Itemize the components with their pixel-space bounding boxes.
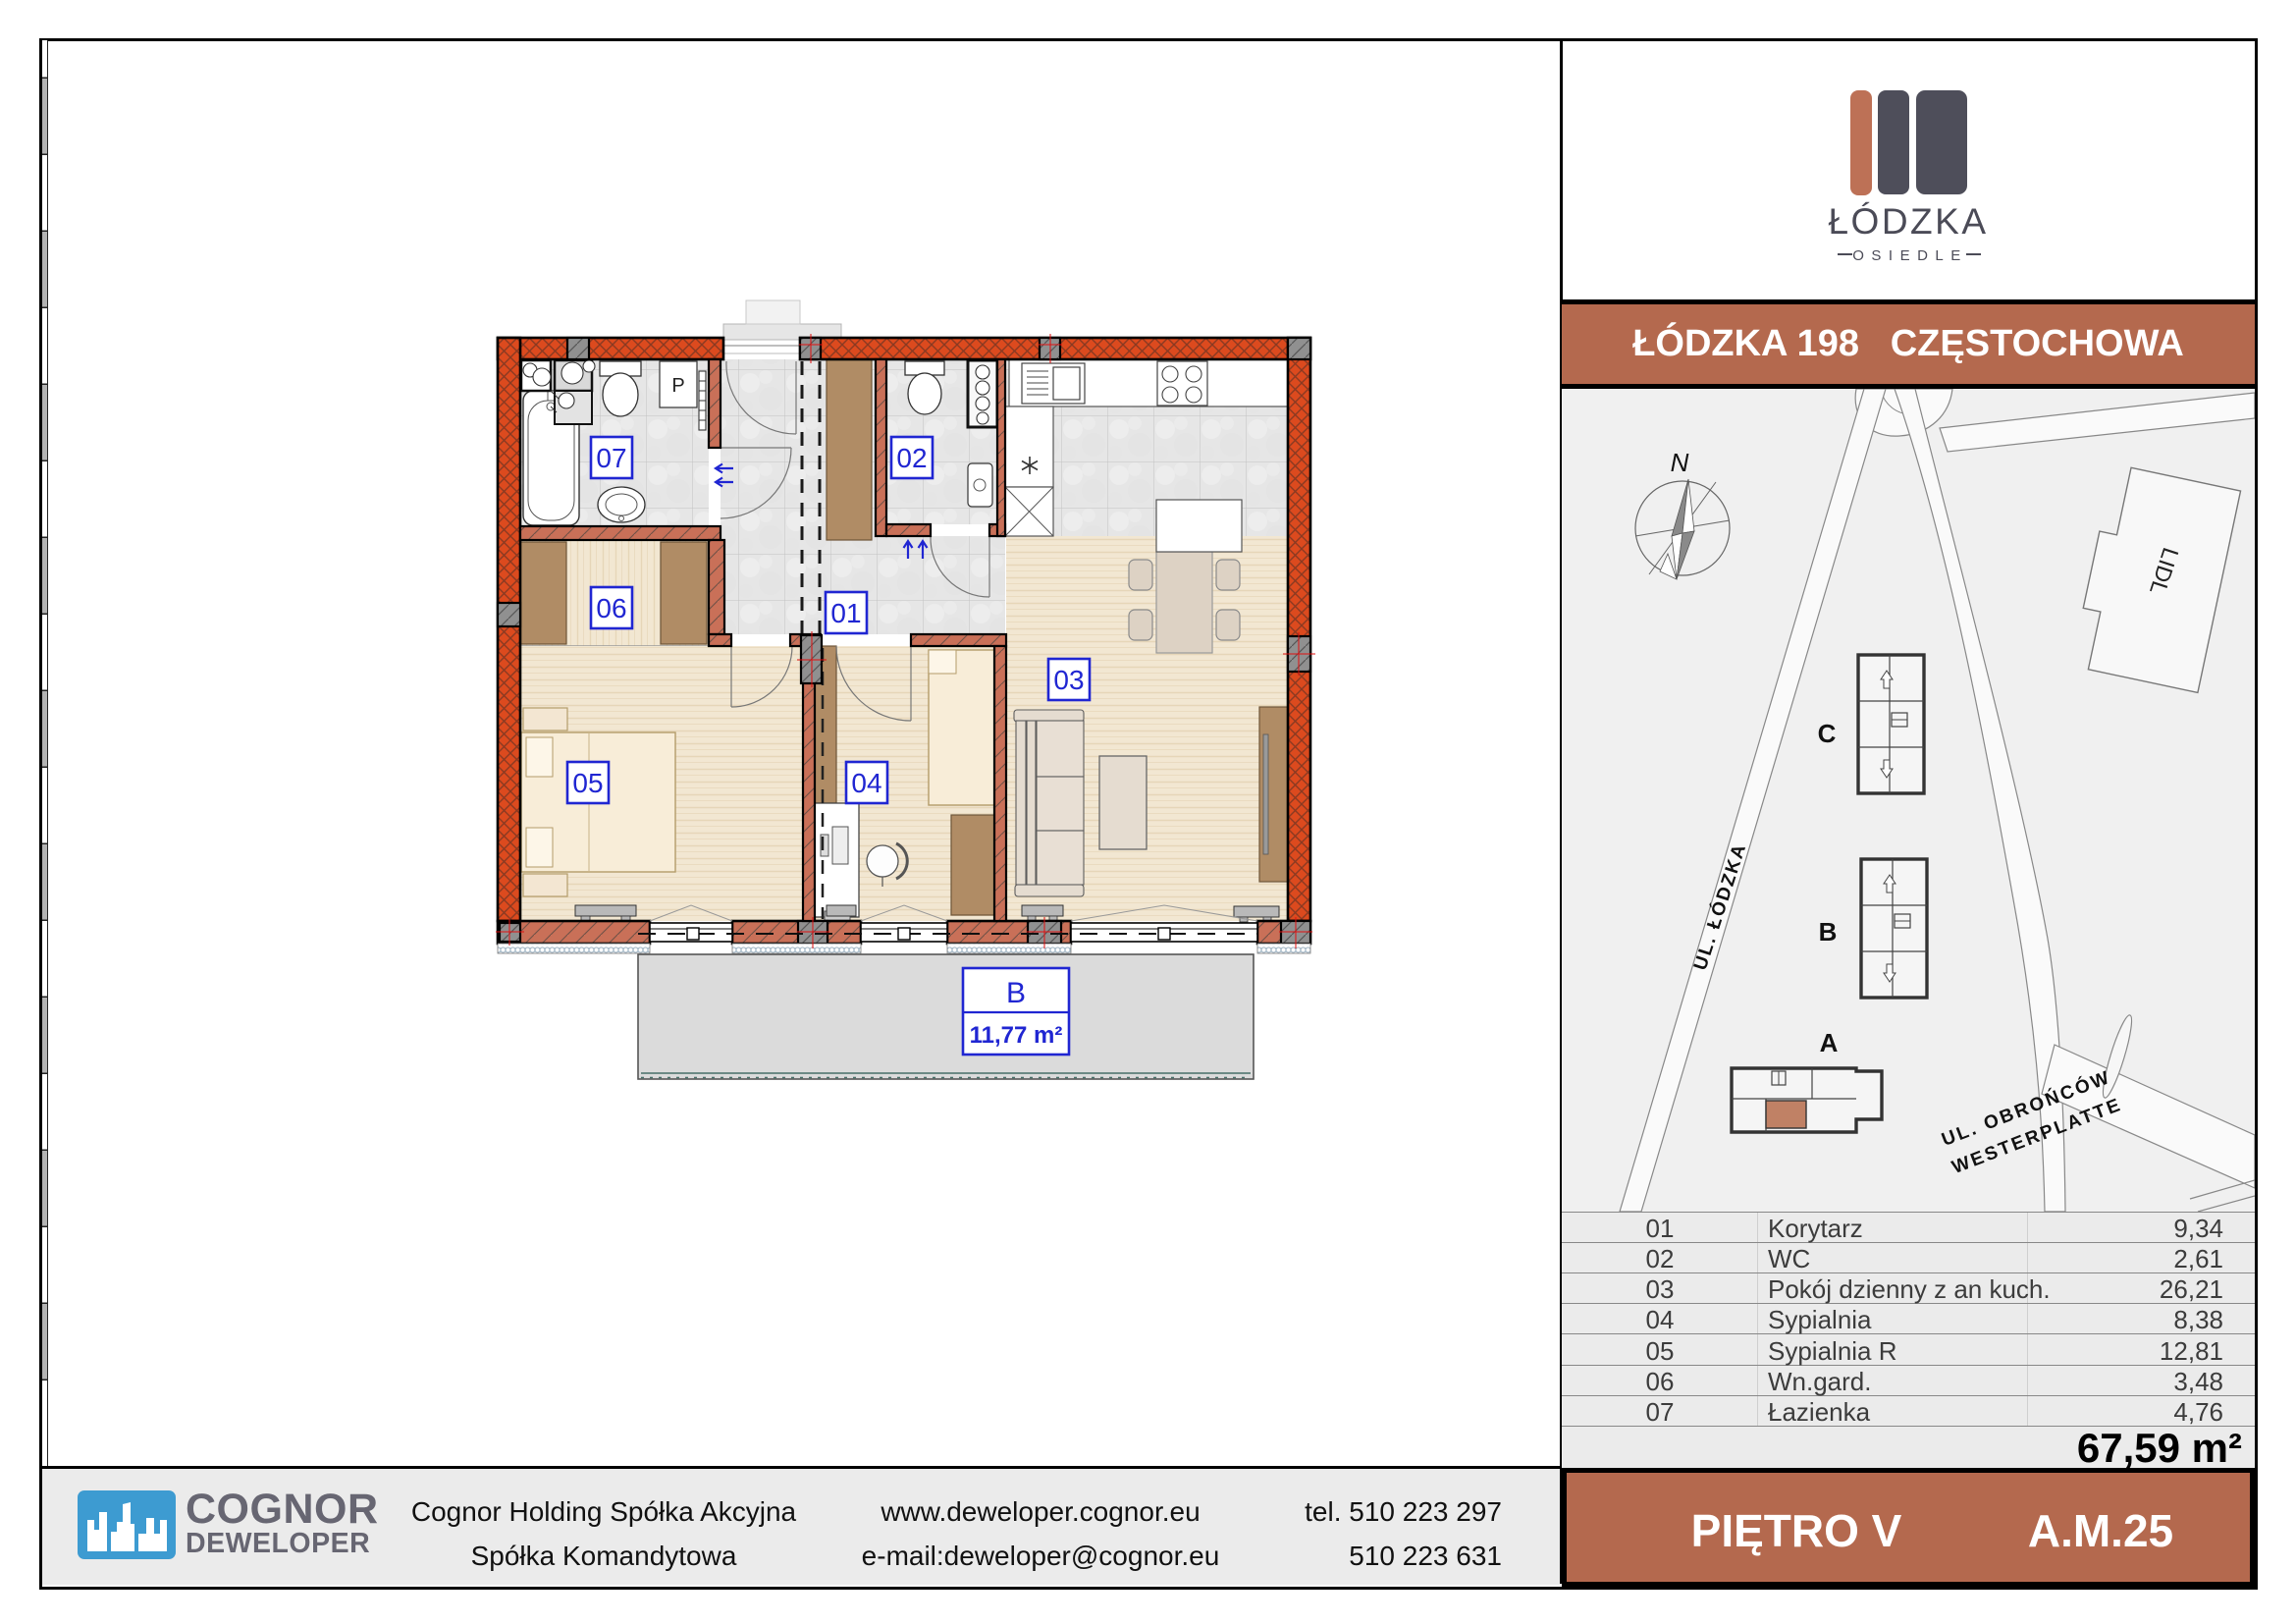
svg-text:04: 04 bbox=[851, 768, 881, 798]
svg-text:03: 03 bbox=[1053, 665, 1084, 695]
svg-text:11,77 m²: 11,77 m² bbox=[970, 1022, 1063, 1049]
svg-text:02: 02 bbox=[896, 443, 927, 473]
svg-text:N: N bbox=[1671, 448, 1689, 477]
svg-text:ŁÓDZKA: ŁÓDZKA bbox=[1828, 201, 1988, 242]
svg-text:A: A bbox=[1820, 1028, 1839, 1057]
svg-text:B: B bbox=[1006, 977, 1026, 1009]
svg-text:06: 06 bbox=[596, 593, 626, 623]
svg-text:01: 01 bbox=[830, 598, 861, 628]
svg-text:05: 05 bbox=[572, 768, 603, 798]
svg-text:P: P bbox=[671, 375, 684, 397]
svg-text:07: 07 bbox=[596, 443, 626, 473]
svg-text:OSIEDLE: OSIEDLE bbox=[1852, 247, 1968, 264]
svg-text:B: B bbox=[1819, 917, 1838, 947]
svg-text:C: C bbox=[1818, 719, 1837, 748]
